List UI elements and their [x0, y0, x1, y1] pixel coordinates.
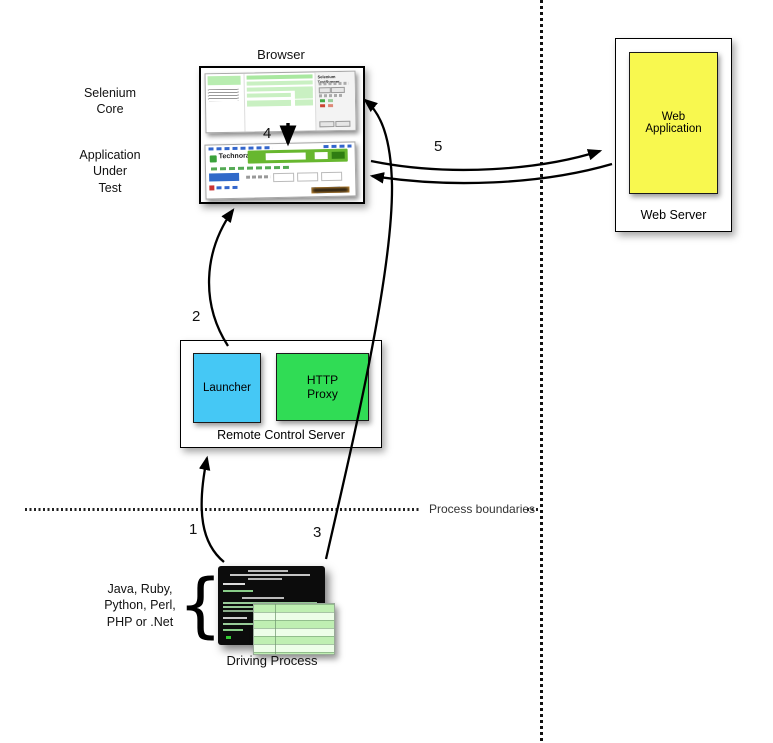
web-server-label: Web Server — [616, 208, 731, 222]
arrow-5-browser-to-webserver — [371, 151, 600, 170]
selenium-core-label: Selenium Core — [55, 85, 165, 118]
test-table-overlay — [253, 603, 335, 655]
vertical-boundary-line — [540, 0, 543, 743]
testrunner-control-pane: Selenium TestRunner — [314, 72, 355, 131]
arrow-2-launcher-to-browser — [209, 210, 233, 346]
technorati-search-button — [332, 152, 345, 159]
technorati-search-input — [266, 152, 306, 160]
selenium-rc-architecture-diagram: Process boundaries Selenium Core Applica… — [0, 0, 773, 743]
http-proxy-box: HTTP Proxy — [276, 353, 369, 421]
step-4-label: 4 — [263, 125, 271, 142]
remote-control-server-label: Remote Control Server — [181, 428, 381, 442]
technorati-banner — [311, 187, 349, 194]
step-3-label: 3 — [313, 524, 321, 541]
step-2-label: 2 — [192, 308, 200, 325]
process-boundary-line — [25, 508, 420, 511]
web-application-box: Web Application — [629, 52, 718, 194]
selenium-testrunner-screenshot: Selenium TestRunner — [204, 71, 356, 134]
application-under-test-label: Application Under Test — [55, 147, 165, 196]
web-server-box: Web Application Web Server — [615, 38, 732, 232]
driving-process-label: Driving Process — [212, 653, 332, 670]
step-5-label: 5 — [434, 138, 442, 155]
testrunner-testsuite-pane — [206, 74, 246, 133]
arrow-5-webserver-to-browser — [372, 164, 612, 183]
testrunner-testcase-pane — [244, 72, 315, 131]
application-under-test-screenshot: Technorati — [204, 141, 356, 199]
step-1-label: 1 — [189, 521, 197, 538]
technorati-logo-icon — [210, 155, 217, 162]
technorati-search-bar — [248, 149, 348, 164]
curly-brace: { — [178, 567, 223, 643]
process-boundaries-label: Process boundaries — [429, 502, 535, 516]
browser-label: Browser — [231, 47, 331, 64]
browser-box: Selenium TestRunner Technorati — [199, 66, 365, 204]
remote-control-server-box: Launcher HTTP Proxy Remote Control Serve… — [180, 340, 382, 448]
technorati-sidebar-tab — [209, 173, 239, 182]
launcher-box: Launcher — [193, 353, 261, 423]
